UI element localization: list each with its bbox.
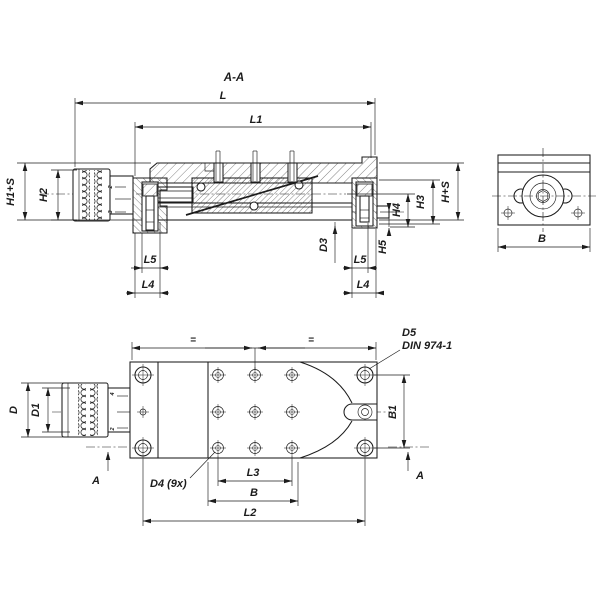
- dim-label-L4-right: L4: [357, 279, 370, 291]
- dim-label-D3: D3: [318, 238, 330, 252]
- knurl-band: [90, 384, 98, 436]
- section-arrow-label-left: A: [91, 475, 100, 487]
- dim-label-H3: H3: [415, 195, 427, 209]
- dial-number-top: 2: [108, 185, 114, 189]
- dim-label-L5-right: L5: [354, 254, 368, 266]
- dim-label-D: D: [8, 406, 20, 414]
- dim-label-B-side: B: [538, 233, 546, 245]
- dim-label-L2: L2: [244, 507, 257, 519]
- dim-label-L: L: [220, 90, 227, 102]
- drawing-background: [0, 0, 600, 600]
- technical-drawing: A-A: [0, 0, 600, 600]
- dim-label-B-plan: B: [250, 487, 258, 499]
- dim-label-eq-right: =: [308, 335, 314, 346]
- dim-label-H4: H4: [391, 203, 403, 217]
- dim-label-L1: L1: [250, 114, 263, 126]
- dim-label-HS: H+S: [440, 180, 452, 202]
- dim-label-L4-left: L4: [142, 279, 155, 291]
- dim-label-L5-left: L5: [144, 254, 158, 266]
- section-title: A-A: [223, 72, 244, 84]
- dial-number-bottom: 3: [108, 210, 114, 213]
- callout-label-D5: D5: [402, 327, 417, 339]
- dim-label-H5: H5: [377, 239, 389, 254]
- dim-label-H1S: H1+S: [5, 177, 17, 205]
- dim-label-eq-left: =: [190, 335, 196, 346]
- knurl-band: [82, 170, 90, 220]
- callout-label-D4: D4 (9x): [150, 478, 187, 490]
- knurl-band: [94, 170, 102, 220]
- callout-label-DIN: DIN 974-1: [402, 340, 452, 352]
- left-flange: [133, 178, 167, 233]
- knurl-band: [78, 384, 86, 436]
- dim-label-B1: B1: [387, 405, 399, 419]
- dim-label-L3: L3: [247, 467, 260, 479]
- dial-number-bottom: 2: [110, 427, 116, 431]
- dim-label-D1: D1: [30, 403, 42, 417]
- dim-label-H2: H2: [38, 188, 50, 202]
- handwheel-section: 2 3: [73, 169, 133, 221]
- handwheel-plan: 4 2: [62, 383, 130, 437]
- section-arrow-label-right: A: [415, 470, 424, 482]
- dial-number-top: 4: [110, 392, 116, 396]
